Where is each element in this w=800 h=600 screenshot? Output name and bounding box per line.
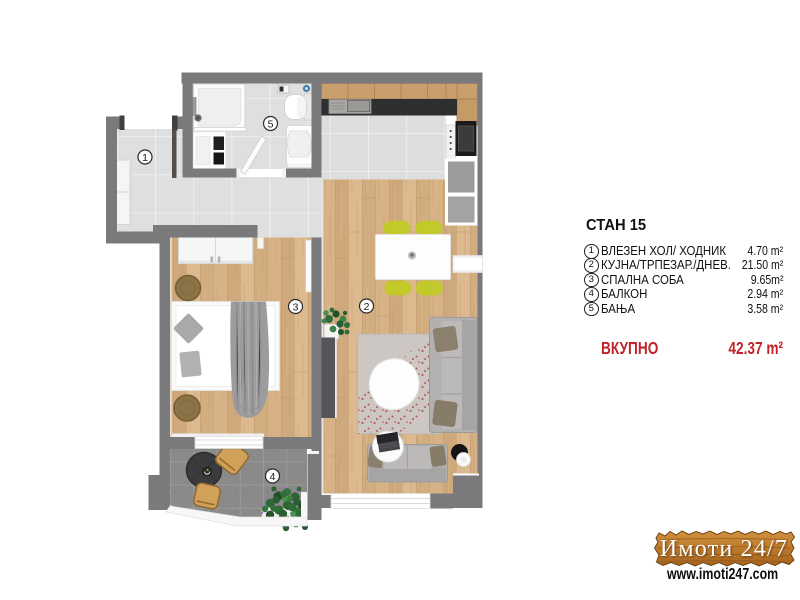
svg-text:5: 5 xyxy=(268,118,274,130)
svg-text:Имоти 24/7: Имоти 24/7 xyxy=(660,536,788,562)
svg-text:2: 2 xyxy=(364,301,370,313)
svg-text:3: 3 xyxy=(293,301,299,313)
svg-text:4: 4 xyxy=(270,471,276,483)
svg-text:1: 1 xyxy=(142,152,148,164)
